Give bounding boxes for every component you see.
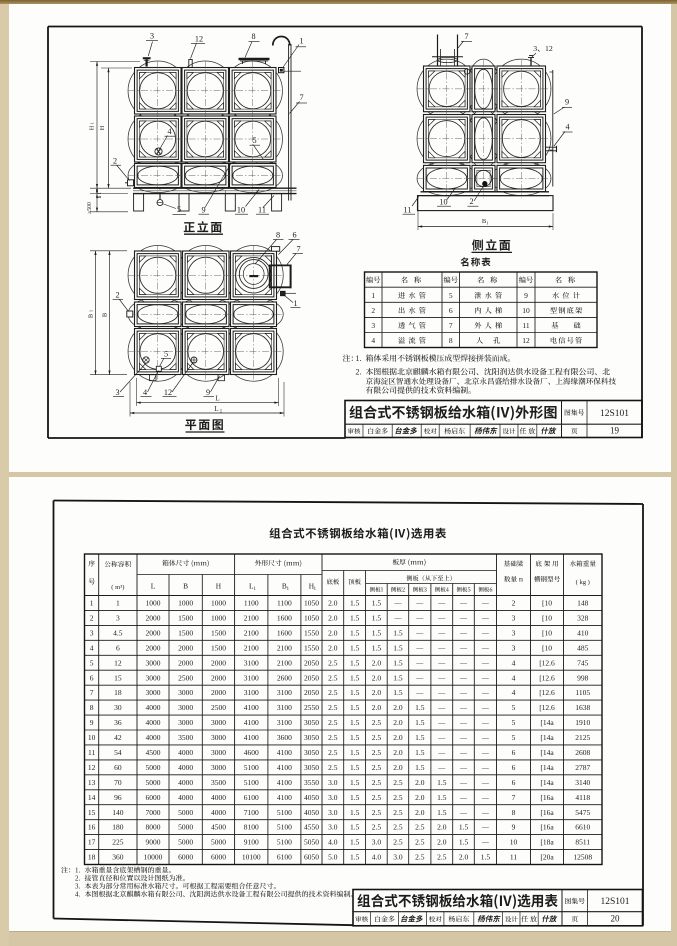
svg-text:11: 11 xyxy=(404,206,412,215)
svg-text:12: 12 xyxy=(522,336,530,345)
svg-text:5.0: 5.0 xyxy=(328,853,338,862)
svg-text:2.0: 2.0 xyxy=(459,853,469,862)
svg-text:2: 2 xyxy=(113,157,117,166)
svg-text:L: L xyxy=(151,582,156,591)
svg-text:[16a: [16a xyxy=(540,823,554,832)
svg-text:—: — xyxy=(415,600,424,608)
svg-text:—: — xyxy=(415,615,424,623)
svg-text:3、12: 3、12 xyxy=(533,44,553,53)
svg-text:—: — xyxy=(481,629,490,637)
svg-text:[16a: [16a xyxy=(540,808,554,817)
svg-text:2050: 2050 xyxy=(304,688,319,697)
svg-text:—: — xyxy=(459,615,468,623)
svg-text:型钢底架: 型钢底架 xyxy=(550,306,584,316)
svg-text:360: 360 xyxy=(112,853,124,862)
svg-text:1.5: 1.5 xyxy=(350,614,360,623)
svg-text:2.5: 2.5 xyxy=(328,703,338,712)
svg-text:侧板3: 侧板3 xyxy=(413,586,427,594)
svg-text:4: 4 xyxy=(512,673,516,682)
svg-text:侧板1: 侧板1 xyxy=(369,586,383,594)
svg-text:4.: 4. xyxy=(75,891,81,899)
svg-text:2.0: 2.0 xyxy=(328,614,338,623)
svg-text:4100: 4100 xyxy=(277,748,292,757)
svg-text:8000: 8000 xyxy=(146,823,161,832)
svg-text:4100: 4100 xyxy=(244,718,259,727)
svg-text:1000: 1000 xyxy=(178,599,193,608)
svg-text:外形尺寸 (mm): 外形尺寸 (mm) xyxy=(255,558,302,568)
svg-text:名 称: 名 称 xyxy=(477,276,499,286)
svg-text:2.0: 2.0 xyxy=(372,658,382,667)
svg-text:—: — xyxy=(481,794,490,802)
svg-text:H: H xyxy=(216,582,222,591)
svg-text:12508: 12508 xyxy=(573,853,592,862)
svg-text:箱体采用不锈钢板模压成型焊接拼装而成。: 箱体采用不锈钢板模压成型焊接拼装而成。 xyxy=(366,353,516,364)
svg-text:2.0: 2.0 xyxy=(437,823,447,832)
svg-text:4100: 4100 xyxy=(244,733,259,742)
svg-text:70: 70 xyxy=(114,778,122,787)
svg-text:10: 10 xyxy=(510,838,518,847)
svg-text:18: 18 xyxy=(114,688,122,697)
svg-text:3.0: 3.0 xyxy=(372,838,382,847)
svg-text:96: 96 xyxy=(114,793,122,802)
svg-text:基础梁: 基础梁 xyxy=(504,558,524,568)
svg-text:—: — xyxy=(415,644,424,652)
svg-text:[10: [10 xyxy=(542,614,552,623)
svg-text:1.5: 1.5 xyxy=(437,778,447,787)
svg-text:组合式不锈钢板给水箱(Ⅳ)外形图: 组合式不锈钢板给水箱(Ⅳ)外形图 xyxy=(349,403,558,423)
svg-text:3140: 3140 xyxy=(575,778,590,787)
svg-text:2.5: 2.5 xyxy=(372,808,382,817)
svg-text:3.0: 3.0 xyxy=(393,853,403,862)
svg-text:1.5: 1.5 xyxy=(393,673,403,682)
svg-text:6: 6 xyxy=(116,643,120,652)
svg-text:1.: 1. xyxy=(75,867,81,875)
svg-text:设计: 设计 xyxy=(505,914,519,923)
svg-text:1000: 1000 xyxy=(211,599,226,608)
svg-text:2.5: 2.5 xyxy=(372,718,382,727)
svg-text:1.5: 1.5 xyxy=(350,599,360,608)
svg-text:15: 15 xyxy=(88,808,96,817)
svg-text:1910: 1910 xyxy=(575,718,590,727)
svg-text:5100: 5100 xyxy=(244,763,259,772)
svg-text:4050: 4050 xyxy=(304,808,319,817)
svg-text:基础: 基础 xyxy=(551,321,595,331)
svg-text:—: — xyxy=(415,629,424,637)
svg-text:5000: 5000 xyxy=(146,778,161,787)
svg-text:2: 2 xyxy=(115,291,119,300)
svg-text:3000: 3000 xyxy=(211,718,226,727)
svg-text:—: — xyxy=(459,704,468,712)
svg-text:2.5: 2.5 xyxy=(393,823,403,832)
svg-text:2.0: 2.0 xyxy=(393,733,403,742)
svg-text:—: — xyxy=(459,779,468,787)
svg-text:图集号: 图集号 xyxy=(564,407,585,417)
svg-text:2000: 2000 xyxy=(146,614,161,623)
svg-text:9: 9 xyxy=(90,718,94,727)
svg-text:2.5: 2.5 xyxy=(372,763,382,772)
svg-text:5: 5 xyxy=(252,136,256,145)
svg-text:4600: 4600 xyxy=(244,748,259,757)
svg-text:9000: 9000 xyxy=(146,838,161,847)
svg-text:2.5: 2.5 xyxy=(393,793,403,802)
svg-text:审核: 审核 xyxy=(347,426,361,435)
svg-text:2100: 2100 xyxy=(244,643,259,652)
svg-text:1.5: 1.5 xyxy=(350,778,360,787)
svg-text:名 称: 名 称 xyxy=(401,276,423,286)
svg-text:5: 5 xyxy=(512,733,516,742)
svg-text:—: — xyxy=(459,644,468,652)
svg-text:[10: [10 xyxy=(542,643,552,652)
svg-text:9: 9 xyxy=(524,291,528,300)
svg-text:4: 4 xyxy=(90,643,94,652)
svg-text:6: 6 xyxy=(512,748,516,757)
svg-text:1.5: 1.5 xyxy=(437,808,447,817)
svg-text:3: 3 xyxy=(116,614,120,623)
svg-text:泄水管: 泄水管 xyxy=(474,291,505,301)
svg-text:3.0: 3.0 xyxy=(328,808,338,817)
svg-text:箱体尺寸 (mm): 箱体尺寸 (mm) xyxy=(162,558,209,568)
svg-text:什放: 什放 xyxy=(540,426,558,437)
svg-text:1.5: 1.5 xyxy=(437,793,447,802)
svg-text:—: — xyxy=(481,644,490,652)
svg-text:[14a: [14a xyxy=(540,718,554,727)
svg-text:—: — xyxy=(393,615,402,623)
svg-text:18: 18 xyxy=(88,853,96,862)
svg-text:1500: 1500 xyxy=(178,614,193,623)
svg-text:5100: 5100 xyxy=(277,838,292,847)
svg-text:1550: 1550 xyxy=(304,643,319,652)
svg-text:14: 14 xyxy=(88,793,96,802)
svg-text:10: 10 xyxy=(439,198,447,207)
svg-text:1: 1 xyxy=(90,599,94,608)
svg-text:2.0: 2.0 xyxy=(393,703,403,712)
svg-text:( kg ): ( kg ) xyxy=(576,579,590,586)
svg-text:2.5: 2.5 xyxy=(372,793,382,802)
svg-text:2.0: 2.0 xyxy=(328,599,338,608)
svg-text:3: 3 xyxy=(512,614,516,623)
svg-text:5000: 5000 xyxy=(178,808,193,817)
svg-text:校对: 校对 xyxy=(424,426,438,435)
svg-text:745: 745 xyxy=(577,658,589,667)
svg-text:[12.6: [12.6 xyxy=(539,658,555,667)
svg-text:3: 3 xyxy=(512,643,516,652)
svg-text:6100: 6100 xyxy=(277,853,292,862)
svg-text:3000: 3000 xyxy=(211,763,226,772)
svg-text:4000: 4000 xyxy=(178,793,193,802)
svg-text:1.5: 1.5 xyxy=(415,763,425,772)
svg-text:—: — xyxy=(481,600,490,608)
svg-text:1.5: 1.5 xyxy=(415,703,425,712)
svg-text:1.5: 1.5 xyxy=(372,614,382,623)
svg-text:有限公司提供的技术资料编制。: 有限公司提供的技术资料编制。 xyxy=(366,385,476,396)
svg-text:2.0: 2.0 xyxy=(372,673,382,682)
svg-text:12S101: 12S101 xyxy=(600,897,629,907)
svg-text:—: — xyxy=(459,659,468,667)
svg-text:2000: 2000 xyxy=(178,643,193,652)
svg-text:[12.6: [12.6 xyxy=(539,703,555,712)
svg-text:10: 10 xyxy=(522,306,530,315)
svg-text:[16a: [16a xyxy=(540,793,554,802)
svg-text:4000: 4000 xyxy=(178,778,193,787)
svg-text:10100: 10100 xyxy=(242,853,261,862)
svg-text:1.5: 1.5 xyxy=(393,658,403,667)
svg-text:3: 3 xyxy=(90,628,94,637)
svg-text:4000: 4000 xyxy=(146,703,161,712)
svg-text:3: 3 xyxy=(371,321,375,330)
svg-text:2.5: 2.5 xyxy=(372,823,382,832)
svg-text:杨伟东: 杨伟东 xyxy=(477,913,503,924)
svg-text:3000: 3000 xyxy=(211,748,226,757)
svg-text:侧板4: 侧板4 xyxy=(435,586,450,594)
svg-text:2100: 2100 xyxy=(244,628,259,637)
svg-text:侧板2: 侧板2 xyxy=(391,586,405,594)
svg-text:—: — xyxy=(481,674,490,682)
svg-text:1.5: 1.5 xyxy=(372,628,382,637)
svg-text:4.0: 4.0 xyxy=(328,838,338,847)
svg-text:1000: 1000 xyxy=(211,614,226,623)
svg-text:名称表: 名称表 xyxy=(460,255,492,269)
svg-text:[14a: [14a xyxy=(540,763,554,772)
svg-text:1638: 1638 xyxy=(575,703,590,712)
svg-text:3500: 3500 xyxy=(211,778,226,787)
svg-text:1.5: 1.5 xyxy=(393,628,403,637)
svg-text:6100: 6100 xyxy=(244,793,259,802)
svg-text:8: 8 xyxy=(90,703,94,712)
svg-text:11: 11 xyxy=(510,853,517,862)
svg-text:8: 8 xyxy=(276,231,280,240)
svg-text:台金多: 台金多 xyxy=(400,913,425,924)
svg-text:—: — xyxy=(459,689,468,697)
svg-text:3100: 3100 xyxy=(244,658,259,667)
svg-text:—: — xyxy=(481,779,490,787)
svg-text:台金多: 台金多 xyxy=(394,426,419,437)
svg-text:1: 1 xyxy=(116,599,120,608)
svg-text:—: — xyxy=(415,674,424,682)
svg-text:页: 页 xyxy=(571,425,578,435)
svg-text:水箱重量: 水箱重量 xyxy=(570,558,597,568)
svg-text:—: — xyxy=(481,704,490,712)
svg-text:1: 1 xyxy=(293,299,297,308)
svg-text:2.5: 2.5 xyxy=(415,838,425,847)
svg-text:2000: 2000 xyxy=(178,658,193,667)
svg-text:1500: 1500 xyxy=(211,628,226,637)
svg-text:2100: 2100 xyxy=(277,643,292,652)
svg-text:2000: 2000 xyxy=(211,688,226,697)
svg-text:溢流管: 溢流管 xyxy=(398,336,429,346)
svg-text:2.5: 2.5 xyxy=(372,733,382,742)
svg-text:140: 140 xyxy=(112,808,124,817)
svg-text:—: — xyxy=(481,719,490,727)
svg-text:侧板6: 侧板6 xyxy=(478,586,492,594)
svg-text:侧板（从下至上）: 侧板（从下至上） xyxy=(406,574,456,583)
svg-text:—: — xyxy=(481,734,490,742)
svg-text:4: 4 xyxy=(512,658,516,667)
svg-text:8511: 8511 xyxy=(575,838,590,847)
svg-text:任 放: 任 放 xyxy=(520,426,536,436)
svg-text:3.0: 3.0 xyxy=(328,778,338,787)
svg-text:1.5: 1.5 xyxy=(350,823,360,832)
svg-text:水位计: 水位计 xyxy=(552,291,583,301)
svg-text:[12.6: [12.6 xyxy=(539,688,555,697)
svg-text:2.0: 2.0 xyxy=(415,808,425,817)
svg-text:[14a: [14a xyxy=(540,748,554,757)
svg-text:5050: 5050 xyxy=(304,838,319,847)
svg-text:5475: 5475 xyxy=(575,808,590,817)
svg-text:485: 485 xyxy=(577,643,589,652)
svg-text:1.5: 1.5 xyxy=(350,673,360,682)
svg-text:4.5: 4.5 xyxy=(113,628,123,637)
svg-text:什放: 什放 xyxy=(541,913,559,924)
svg-text:7: 7 xyxy=(299,93,303,102)
svg-text:2.0: 2.0 xyxy=(415,778,425,787)
svg-text:16: 16 xyxy=(88,823,96,832)
svg-text:序: 序 xyxy=(88,558,95,568)
svg-text:8: 8 xyxy=(251,32,255,41)
svg-text:54: 54 xyxy=(114,748,122,757)
svg-text:6000: 6000 xyxy=(178,853,193,862)
svg-text:3.0: 3.0 xyxy=(328,793,338,802)
svg-text:2787: 2787 xyxy=(575,763,590,772)
svg-text:11: 11 xyxy=(88,748,95,757)
svg-text:校对: 校对 xyxy=(429,914,443,923)
svg-text:编号: 编号 xyxy=(519,276,533,286)
svg-text:225: 225 xyxy=(112,838,124,847)
svg-text:20: 20 xyxy=(611,913,621,923)
svg-text:2.5: 2.5 xyxy=(372,748,382,757)
svg-text:2.0: 2.0 xyxy=(372,688,382,697)
svg-text:1.5: 1.5 xyxy=(372,643,382,652)
svg-text:1600: 1600 xyxy=(277,614,292,623)
svg-text:4: 4 xyxy=(167,127,171,136)
svg-text:7: 7 xyxy=(449,321,453,330)
svg-text:杨启东: 杨启东 xyxy=(448,914,469,924)
svg-text:5000: 5000 xyxy=(211,838,226,847)
svg-text:—: — xyxy=(415,689,424,697)
svg-text:—: — xyxy=(459,600,468,608)
svg-text:—: — xyxy=(437,719,446,727)
svg-text:6610: 6610 xyxy=(575,823,590,832)
svg-text:5: 5 xyxy=(90,658,94,667)
svg-text:4000: 4000 xyxy=(146,733,161,742)
svg-text:2.: 2. xyxy=(75,875,81,883)
svg-text:出水管: 出水管 xyxy=(398,306,429,316)
svg-text:2.5: 2.5 xyxy=(393,838,403,847)
svg-text:5100: 5100 xyxy=(244,778,259,787)
svg-text:2.0: 2.0 xyxy=(415,793,425,802)
svg-text:1.5: 1.5 xyxy=(350,733,360,742)
svg-text:1100: 1100 xyxy=(277,599,292,608)
svg-text:8100: 8100 xyxy=(244,823,259,832)
svg-text:—: — xyxy=(459,809,468,817)
svg-text:板厚 (mm): 板厚 (mm) xyxy=(392,557,426,567)
svg-text:杨伟东: 杨伟东 xyxy=(473,426,499,437)
svg-text:—: — xyxy=(437,704,446,712)
svg-text:4000: 4000 xyxy=(178,763,193,772)
svg-text:1.5: 1.5 xyxy=(350,658,360,667)
svg-text:17: 17 xyxy=(88,838,96,847)
svg-text:电信号管: 电信号管 xyxy=(550,336,584,346)
svg-text:3: 3 xyxy=(150,32,154,41)
svg-text:1.5: 1.5 xyxy=(350,628,360,637)
svg-text:1: 1 xyxy=(89,310,94,312)
svg-text:11: 11 xyxy=(522,321,529,330)
svg-text:侧立面: 侧立面 xyxy=(472,237,513,254)
svg-text:7: 7 xyxy=(512,793,516,802)
svg-text:19: 19 xyxy=(610,425,620,435)
svg-text:2.0: 2.0 xyxy=(437,838,447,847)
svg-text:1.5: 1.5 xyxy=(415,748,425,757)
svg-text:1600: 1600 xyxy=(277,628,292,637)
svg-text:1100: 1100 xyxy=(244,599,259,608)
svg-text:12S101: 12S101 xyxy=(600,409,629,419)
svg-text:3.: 3. xyxy=(75,883,81,891)
svg-text:2100: 2100 xyxy=(244,614,259,623)
svg-text:6: 6 xyxy=(512,778,516,787)
svg-text:1105: 1105 xyxy=(575,688,590,697)
svg-text:3100: 3100 xyxy=(244,688,259,697)
svg-text:410: 410 xyxy=(577,628,589,637)
svg-text:1.5: 1.5 xyxy=(350,643,360,652)
svg-text:3.0: 3.0 xyxy=(328,823,338,832)
svg-text:1.5: 1.5 xyxy=(459,838,469,847)
svg-text:2.0: 2.0 xyxy=(328,643,338,652)
svg-text:2.5: 2.5 xyxy=(328,688,338,697)
svg-text:1550: 1550 xyxy=(304,628,319,637)
svg-text:5000: 5000 xyxy=(178,823,193,832)
svg-text:6050: 6050 xyxy=(304,853,319,862)
svg-text:—: — xyxy=(437,644,446,652)
svg-text:—: — xyxy=(437,629,446,637)
svg-text:人孔: 人孔 xyxy=(476,336,510,346)
svg-text:2000: 2000 xyxy=(211,658,226,667)
svg-text:1.5: 1.5 xyxy=(350,718,360,727)
svg-text:1.5: 1.5 xyxy=(393,688,403,697)
svg-text:8: 8 xyxy=(449,336,453,345)
svg-text:—: — xyxy=(481,764,490,772)
svg-text:1500: 1500 xyxy=(211,643,226,652)
svg-text:3050: 3050 xyxy=(304,748,319,757)
svg-text:1.5: 1.5 xyxy=(350,793,360,802)
svg-text:6000: 6000 xyxy=(146,793,161,802)
svg-text:5100: 5100 xyxy=(277,808,292,817)
svg-text:2.0: 2.0 xyxy=(328,628,338,637)
svg-text:—: — xyxy=(437,615,446,623)
svg-text:7: 7 xyxy=(296,245,300,254)
svg-text:1050: 1050 xyxy=(304,614,319,623)
svg-text:3500: 3500 xyxy=(178,733,193,742)
svg-text:平面图: 平面图 xyxy=(185,416,226,433)
svg-text:1.5: 1.5 xyxy=(350,853,360,862)
svg-text:12: 12 xyxy=(114,658,122,667)
svg-text:3: 3 xyxy=(115,388,119,397)
svg-text:36: 36 xyxy=(114,718,122,727)
svg-text:审核: 审核 xyxy=(355,914,369,923)
svg-text:4050: 4050 xyxy=(304,793,319,802)
svg-text:—: — xyxy=(415,659,424,667)
svg-text:2600: 2600 xyxy=(277,673,292,682)
svg-text:—: — xyxy=(393,600,402,608)
svg-text:180: 180 xyxy=(112,823,124,832)
svg-text:2000: 2000 xyxy=(146,643,161,652)
svg-text:2.5: 2.5 xyxy=(328,718,338,727)
svg-text:3050: 3050 xyxy=(304,763,319,772)
svg-text:—: — xyxy=(437,749,446,757)
svg-text:4: 4 xyxy=(143,388,147,397)
svg-text:10: 10 xyxy=(88,733,96,742)
svg-text:6000: 6000 xyxy=(211,853,226,862)
svg-text:H: H xyxy=(100,125,106,130)
svg-text:5000: 5000 xyxy=(146,763,161,772)
